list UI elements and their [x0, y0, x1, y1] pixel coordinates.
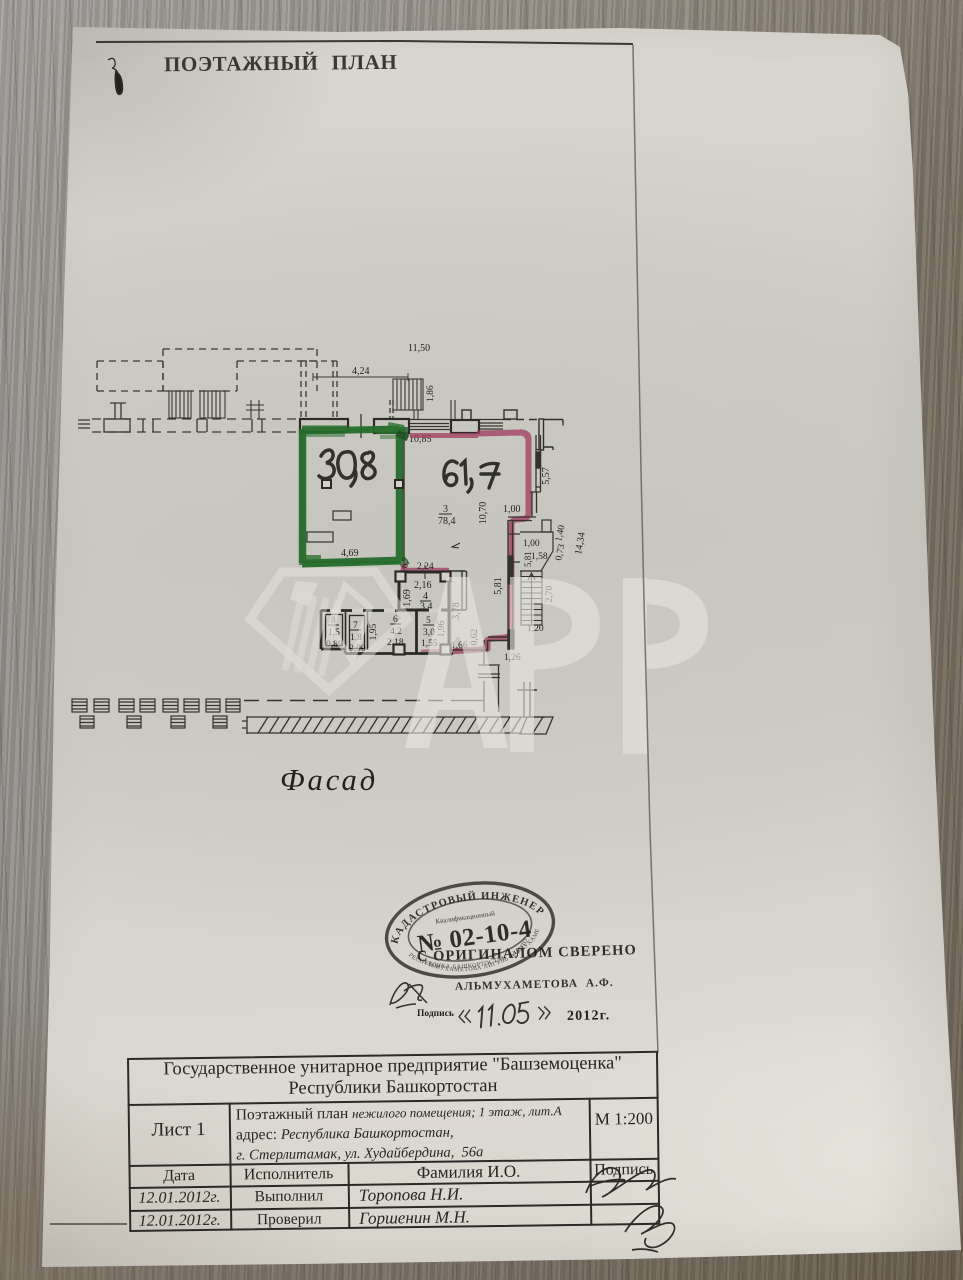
svg-text:АЛЬМУХАМЕТОВА А.Ф.: АЛЬМУХАМЕТОВА А.Ф.	[455, 977, 614, 993]
svg-text:1,40: 1,40	[554, 524, 567, 543]
svg-text:78,4: 78,4	[438, 516, 456, 527]
svg-text:1,86: 1,86	[426, 385, 436, 402]
svg-text:РЕСПУБЛИКА БАШКОРТОСТАН АЛЬМУХ: РЕСПУБЛИКА БАШКОРТОСТАН АЛЬМУХАМЕТОВА	[0, 0, 546, 1035]
svg-text:14,34: 14,34	[573, 531, 588, 555]
svg-text:4,69: 4,69	[341, 548, 359, 559]
svg-text:2,16: 2,16	[414, 580, 432, 591]
svg-text:0,7: 0,7	[400, 557, 410, 568]
svg-text:4,24: 4,24	[352, 366, 370, 377]
svg-text:0,73: 0,73	[554, 543, 567, 562]
svg-text:1,00: 1,00	[503, 504, 521, 515]
svg-text:1,00: 1,00	[523, 539, 540, 549]
svg-text:2012г.: 2012г.	[567, 1008, 611, 1024]
svg-text:Фасад: Фасад	[280, 763, 378, 797]
svg-text:5,57: 5,57	[541, 467, 552, 485]
svg-text:Подпись: Подпись	[417, 1009, 454, 1019]
svg-text:4: 4	[423, 591, 428, 602]
svg-text:5,81: 5,81	[523, 551, 533, 567]
svg-text:11,50: 11,50	[408, 343, 430, 354]
svg-text:10,70: 10,70	[478, 502, 489, 525]
svg-text:1,69: 1,69	[402, 589, 413, 607]
svg-text:1,58: 1,58	[531, 552, 548, 562]
svg-text:3: 3	[443, 504, 448, 515]
svg-text:5,81: 5,81	[493, 577, 504, 595]
svg-text:1,95: 1,95	[369, 623, 379, 640]
